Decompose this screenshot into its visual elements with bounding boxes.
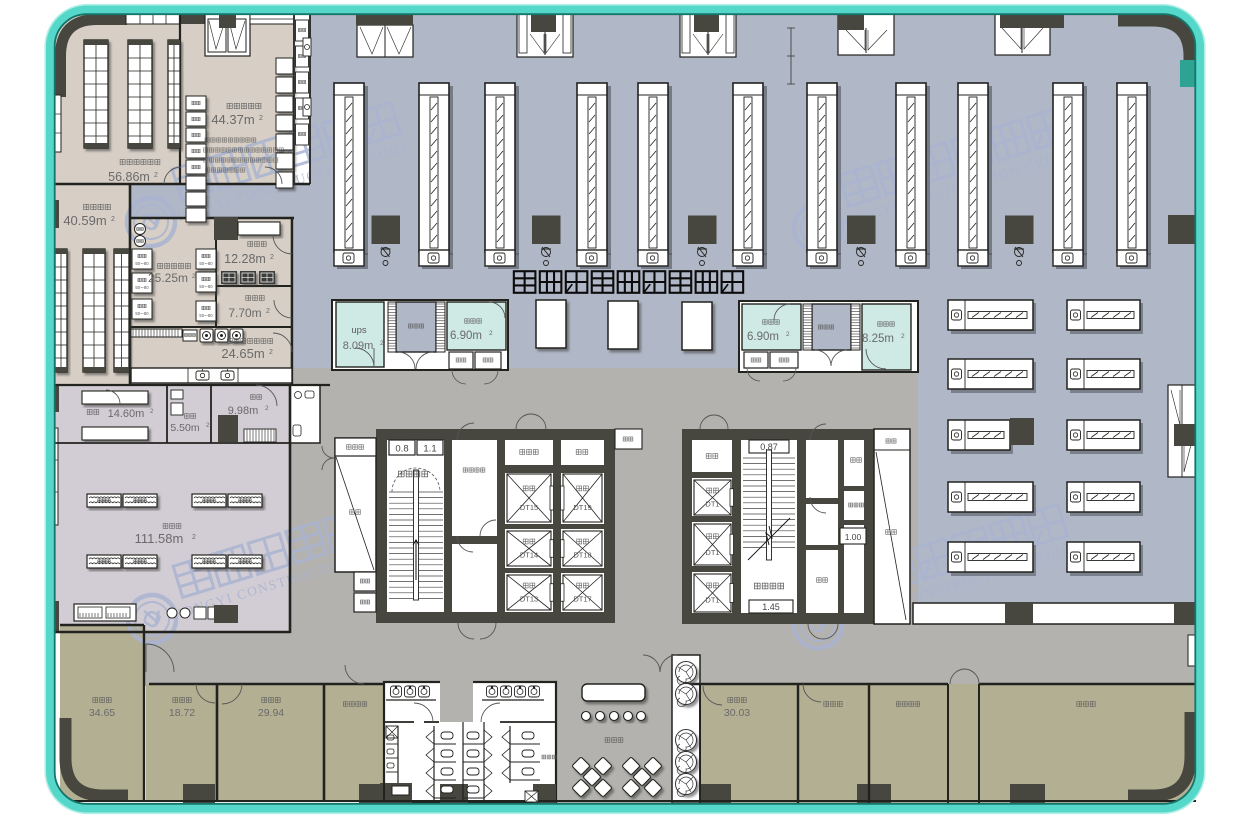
svg-text:1.1: 1.1 (423, 444, 436, 455)
svg-text:2: 2 (266, 308, 270, 315)
svg-text:5.50m: 5.50m (170, 422, 199, 434)
svg-text:50~-80: 50~-80 (199, 261, 213, 266)
svg-text:2: 2 (269, 349, 273, 356)
svg-text:50~-80: 50~-80 (199, 284, 213, 289)
svg-text:40.59m: 40.59m (63, 213, 106, 228)
svg-text:50~-80: 50~-80 (135, 311, 149, 316)
svg-text:ups: ups (351, 325, 367, 336)
svg-text:12.28m: 12.28m (224, 252, 266, 266)
svg-text:30.03: 30.03 (724, 707, 750, 719)
svg-text:DT19: DT19 (573, 503, 591, 512)
svg-text:6.90m: 6.90m (450, 330, 482, 342)
svg-text:2: 2 (265, 405, 269, 412)
svg-text:DT15: DT15 (520, 503, 538, 512)
svg-text:24.65m: 24.65m (221, 346, 264, 361)
svg-text:2: 2 (192, 534, 196, 541)
svg-text:50~-80: 50~-80 (199, 313, 213, 318)
svg-text:56.86m: 56.86m (108, 170, 150, 184)
svg-text:0.8: 0.8 (395, 444, 408, 455)
svg-text:DT1: DT1 (705, 596, 719, 605)
svg-text:34.65: 34.65 (89, 707, 115, 719)
svg-text:8.25m: 8.25m (862, 333, 894, 345)
svg-text:25.25m: 25.25m (148, 271, 188, 285)
svg-text:DT17: DT17 (573, 594, 591, 603)
svg-text:9.98m: 9.98m (228, 405, 259, 417)
svg-text:DT13: DT13 (520, 594, 538, 603)
svg-text:50~-80: 50~-80 (135, 285, 149, 290)
svg-text:44.37m: 44.37m (211, 112, 254, 127)
svg-text:2: 2 (270, 254, 274, 261)
svg-text:50~-80: 50~-80 (135, 261, 149, 266)
svg-text:2: 2 (489, 330, 493, 337)
svg-text:7.70m: 7.70m (228, 306, 261, 320)
svg-text:2: 2 (192, 273, 196, 280)
svg-text:14.60m: 14.60m (108, 408, 145, 420)
svg-text:DT18: DT18 (573, 550, 591, 559)
svg-text:2: 2 (111, 216, 115, 223)
svg-text:6.90m: 6.90m (747, 331, 779, 343)
svg-text:DT1: DT1 (705, 499, 719, 508)
svg-text:111.58m: 111.58m (135, 531, 184, 546)
svg-text:2: 2 (154, 172, 158, 179)
svg-text:2: 2 (259, 115, 263, 122)
svg-text:DT14: DT14 (520, 550, 538, 559)
svg-text:18.72: 18.72 (169, 707, 195, 719)
svg-text:DT1: DT1 (705, 548, 719, 557)
svg-text:29.94: 29.94 (258, 707, 284, 719)
svg-text:2: 2 (380, 340, 384, 347)
svg-text:1.45: 1.45 (762, 602, 780, 612)
svg-text:2: 2 (786, 331, 790, 338)
svg-text:8.09m: 8.09m (343, 340, 374, 352)
svg-text:2: 2 (901, 333, 905, 340)
svg-text:1.00: 1.00 (845, 532, 862, 542)
